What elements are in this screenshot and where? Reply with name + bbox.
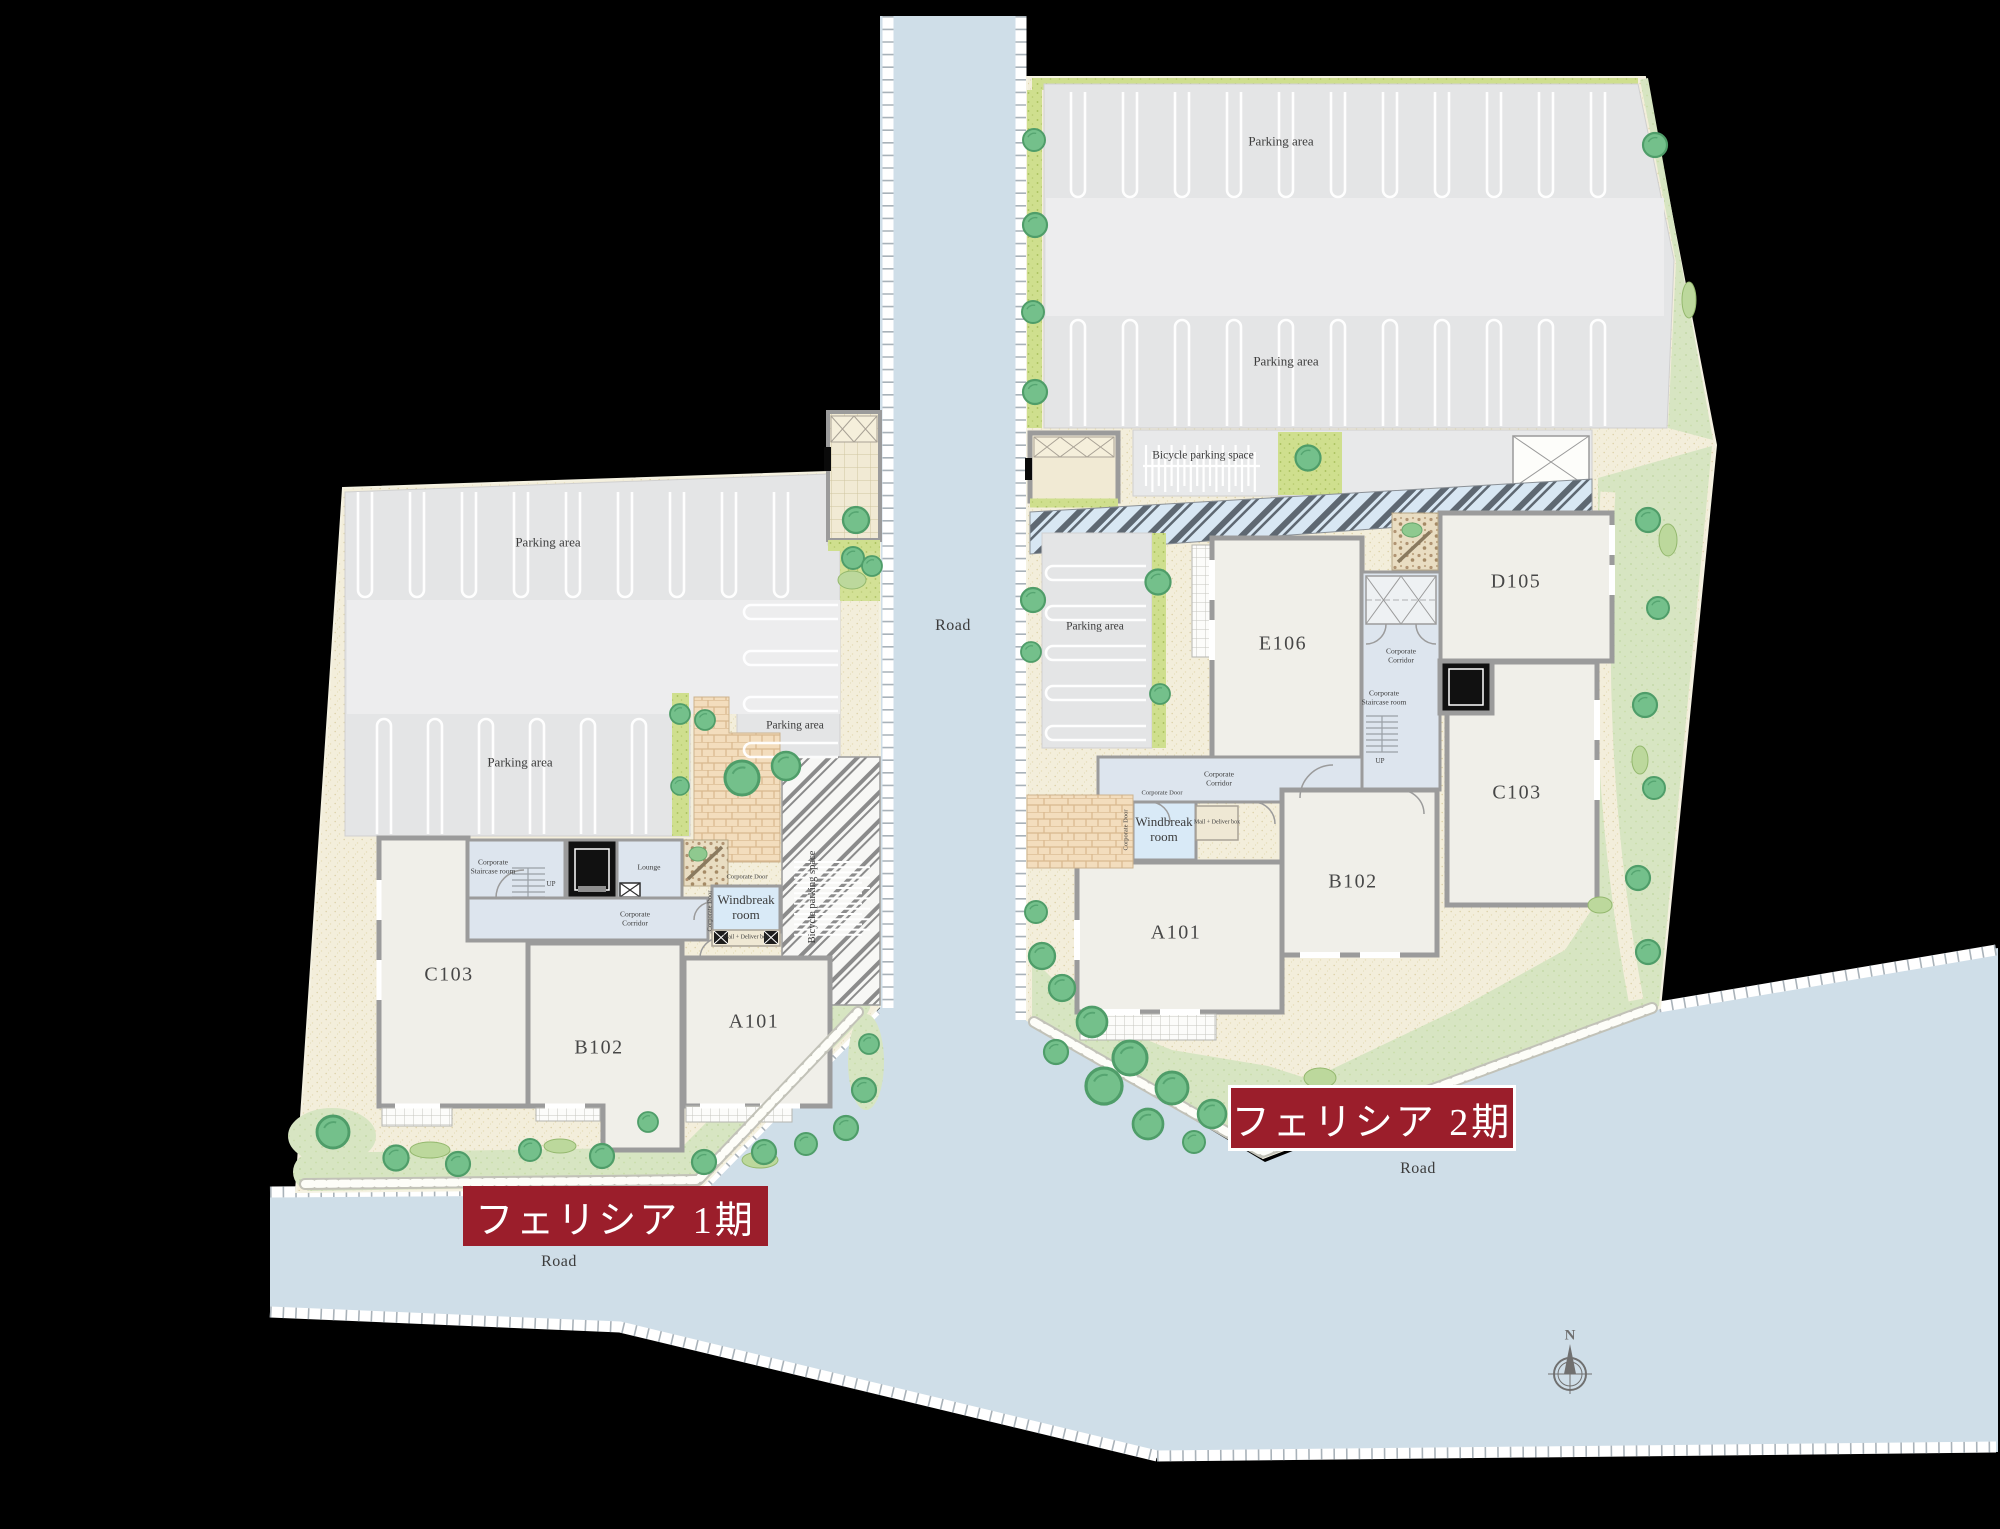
elevator-phase2 — [1440, 661, 1492, 713]
elevator-phase1 — [567, 840, 617, 898]
tree-icon — [1049, 975, 1075, 1001]
tree-icon — [1044, 1040, 1068, 1064]
tree-icon — [1183, 1131, 1205, 1153]
tree-icon — [852, 1078, 876, 1102]
tree-icon — [1150, 684, 1170, 704]
tree-icon — [843, 507, 869, 533]
building-phase1 — [379, 838, 830, 1150]
windbreak-room-phase1 — [712, 886, 780, 932]
tree-icon — [772, 752, 800, 780]
tree-icon — [725, 761, 759, 795]
tree-icon — [384, 1146, 409, 1171]
tree-icon — [590, 1144, 614, 1168]
tree-icon — [317, 1116, 349, 1148]
tree-icon — [842, 547, 864, 569]
parking-lot-phase2 — [1044, 84, 1674, 428]
room-d105-phase2 — [1440, 513, 1612, 661]
tree-icon — [1021, 588, 1045, 612]
tree-icon — [692, 1150, 716, 1174]
tree-icon — [1647, 597, 1669, 619]
tree-icon — [670, 704, 690, 724]
tree-icon — [1023, 380, 1047, 404]
parcel-phase2 — [1025, 77, 1716, 1158]
rock-garden-phase2 — [1392, 513, 1438, 570]
tree-icon — [1113, 1041, 1147, 1075]
room-e106-phase2 — [1212, 538, 1362, 785]
tree-icon — [752, 1140, 776, 1164]
tree-icon — [1643, 777, 1665, 799]
tree-icon — [1086, 1068, 1122, 1104]
tree-icon — [1636, 940, 1660, 964]
mail-box-phase2 — [1196, 806, 1238, 840]
tree-icon — [1643, 133, 1667, 157]
tree-icon — [671, 777, 689, 795]
tree-icon — [1636, 508, 1660, 532]
staircase-room-phase1 — [468, 840, 565, 898]
tree-icon — [862, 556, 882, 576]
tree-icon — [1198, 1100, 1226, 1128]
room-a101-phase1 — [684, 958, 830, 1106]
room-a101-phase2 — [1077, 862, 1282, 1012]
phase2-banner: フェリシア 2期 — [1228, 1085, 1516, 1151]
tree-icon — [1626, 866, 1650, 890]
tree-icon — [1021, 642, 1041, 662]
tree-icon — [1146, 570, 1171, 595]
tree-icon — [446, 1152, 470, 1176]
tree-icon — [1633, 693, 1657, 717]
site-plan: Parking area Parking area Parking area C… — [0, 0, 2000, 1529]
room-b102-phase2 — [1282, 790, 1437, 955]
stairs-icon — [1366, 716, 1398, 752]
tree-icon — [1296, 446, 1321, 471]
tree-icon — [519, 1139, 541, 1161]
tree-icon — [859, 1034, 879, 1054]
pit-box-icon — [620, 883, 640, 897]
tree-icon — [1029, 943, 1055, 969]
corridor-phase1 — [468, 898, 708, 940]
windbreak-room-phase2 — [1133, 802, 1196, 860]
refuse-station-phase2 — [1025, 433, 1118, 503]
site-plan-graphics — [0, 0, 2000, 1529]
tree-icon — [1023, 213, 1047, 237]
phase1-banner: フェリシア 1期 — [463, 1186, 768, 1246]
tree-icon — [795, 1133, 817, 1155]
tree-icon — [1022, 301, 1044, 323]
tree-icon — [1133, 1109, 1163, 1139]
tree-icon — [1077, 1007, 1107, 1037]
tree-icon — [638, 1112, 658, 1132]
tree-icon — [1023, 129, 1045, 151]
elevator-hall-phase2 — [1366, 576, 1436, 624]
brick-entry-phase2 — [1027, 795, 1133, 868]
tree-icon — [834, 1116, 858, 1140]
tree-icon — [695, 710, 715, 730]
tree-icon — [1156, 1072, 1188, 1104]
compass-north-label: N — [1565, 1328, 1576, 1345]
rock-garden-phase1 — [684, 840, 728, 886]
tree-icon — [1025, 901, 1047, 923]
